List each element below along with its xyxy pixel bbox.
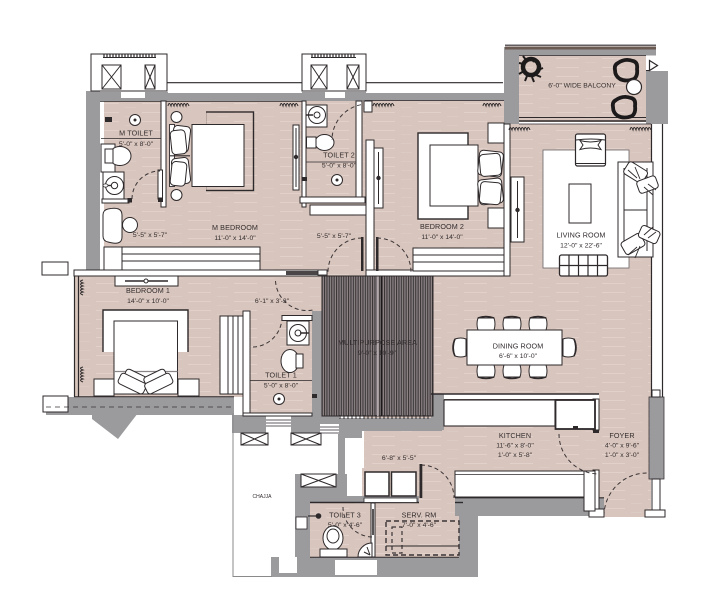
svg-text:BEDROOM 1: BEDROOM 1 xyxy=(126,286,170,295)
svg-text:5'-0" x 8'-0": 5'-0" x 8'-0" xyxy=(264,383,299,390)
svg-text:5'-5" x 5'-7": 5'-5" x 5'-7" xyxy=(133,232,168,239)
svg-text:DINING ROOM: DINING ROOM xyxy=(493,342,544,351)
svg-text:LIVING ROOM: LIVING ROOM xyxy=(556,231,605,240)
svg-text:11'-6" x 8'-0": 11'-6" x 8'-0" xyxy=(496,443,534,450)
svg-text:KITCHEN: KITCHEN xyxy=(499,431,531,440)
svg-text:14'-0" x 10'-0": 14'-0" x 10'-0" xyxy=(127,298,169,305)
svg-text:6'-8" x 5'-5": 6'-8" x 5'-5" xyxy=(382,455,417,462)
svg-text:5'-5" x 5'-7": 5'-5" x 5'-7" xyxy=(317,233,352,240)
svg-text:9'-0" x 10'-9": 9'-0" x 10'-9" xyxy=(358,350,397,357)
svg-text:11'-0" x 14'-0": 11'-0" x 14'-0" xyxy=(214,235,256,242)
svg-text:1'-0" x 5'-8": 1'-0" x 5'-8" xyxy=(498,452,533,459)
svg-text:TOILET 2: TOILET 2 xyxy=(323,151,355,160)
svg-text:MULTIPURPOSE AREA: MULTIPURPOSE AREA xyxy=(338,338,417,347)
svg-text:FOYER: FOYER xyxy=(609,431,634,440)
svg-text:4'-0" x 9'-6": 4'-0" x 9'-6" xyxy=(605,443,640,450)
svg-text:CHAJJA: CHAJJA xyxy=(253,494,273,500)
svg-text:6'-1" x 3'-3": 6'-1" x 3'-3" xyxy=(255,298,290,305)
svg-text:5'-0" x 4'-6": 5'-0" x 4'-6" xyxy=(328,522,363,529)
svg-text:BEDROOM 2: BEDROOM 2 xyxy=(420,222,464,231)
svg-text:5'-0" x 8'-0": 5'-0" x 8'-0" xyxy=(119,141,154,148)
svg-text:M BEDROOM: M BEDROOM xyxy=(212,223,258,232)
svg-text:7'-0" x 4'-6": 7'-0" x 4'-6" xyxy=(402,522,437,529)
svg-text:5'-0" x 8'-0": 5'-0" x 8'-0" xyxy=(322,163,357,170)
svg-text:M TOILET: M TOILET xyxy=(119,129,153,138)
svg-text:TOILET 3: TOILET 3 xyxy=(329,511,361,520)
svg-text:6'-6" x 10'-0": 6'-6" x 10'-0" xyxy=(499,353,538,360)
svg-text:1'-0" x 3'-0": 1'-0" x 3'-0" xyxy=(605,452,640,459)
svg-text:TOILET 1: TOILET 1 xyxy=(265,371,297,380)
svg-text:6'-0" WIDE BALCONY: 6'-0" WIDE BALCONY xyxy=(548,83,616,90)
svg-text:11'-0" x 14'-0": 11'-0" x 14'-0" xyxy=(421,234,463,241)
svg-text:12'-0" x 22'-6": 12'-0" x 22'-6" xyxy=(560,243,602,250)
svg-text:SERV. RM: SERV. RM xyxy=(402,511,437,520)
